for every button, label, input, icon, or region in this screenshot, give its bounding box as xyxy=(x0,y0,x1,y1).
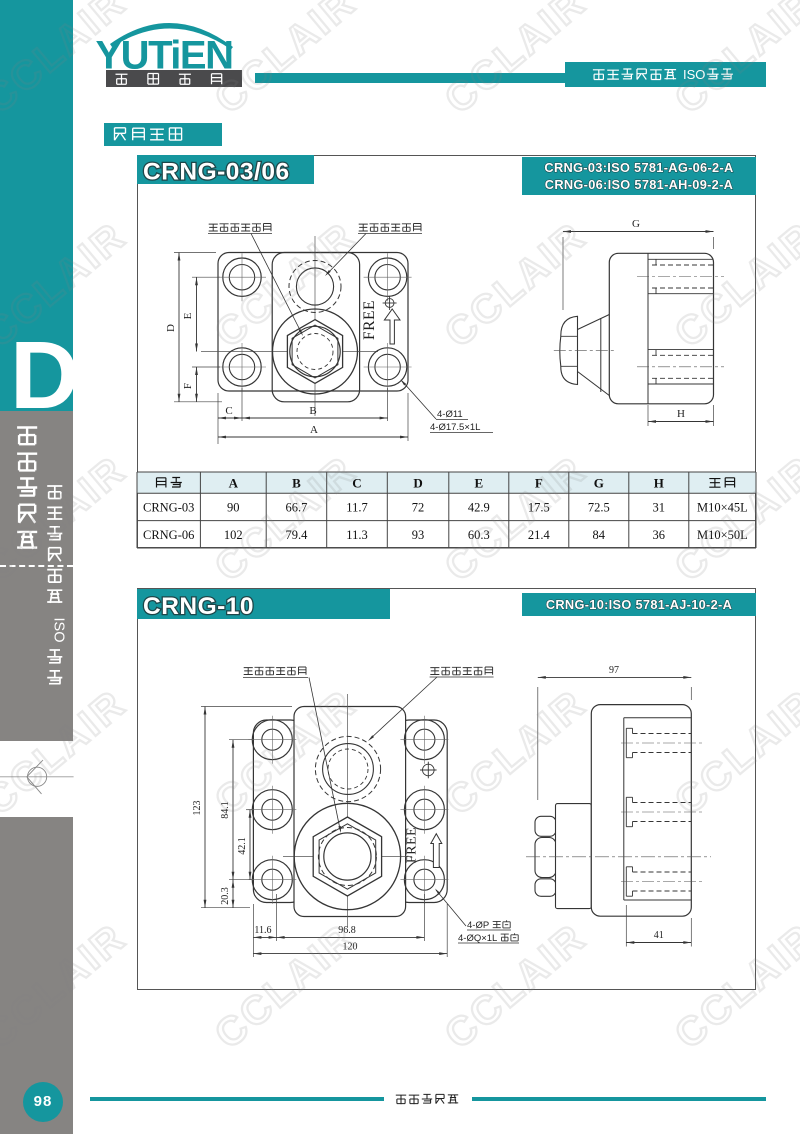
svg-text:CCLAIR: CCLAIR xyxy=(0,214,135,356)
svg-text:CCLAIR: CCLAIR xyxy=(207,447,365,589)
svg-text:CCLAIR: CCLAIR xyxy=(0,681,135,823)
svg-text:CCLAIR: CCLAIR xyxy=(667,681,800,823)
svg-text:CCLAIR: CCLAIR xyxy=(437,214,595,356)
svg-text:CCLAIR: CCLAIR xyxy=(0,0,135,122)
svg-text:CCLAIR: CCLAIR xyxy=(667,915,800,1057)
svg-text:CCLAIR: CCLAIR xyxy=(437,915,595,1057)
svg-text:CCLAIR: CCLAIR xyxy=(437,447,595,589)
svg-text:CCLAIR: CCLAIR xyxy=(207,681,365,823)
svg-text:CCLAIR: CCLAIR xyxy=(437,681,595,823)
svg-text:CCLAIR: CCLAIR xyxy=(437,0,595,122)
svg-text:CCLAIR: CCLAIR xyxy=(207,915,365,1057)
svg-text:CCLAIR: CCLAIR xyxy=(207,214,365,356)
svg-text:CCLAIR: CCLAIR xyxy=(667,0,800,122)
svg-text:CCLAIR: CCLAIR xyxy=(207,0,365,122)
svg-text:CCLAIR: CCLAIR xyxy=(667,447,800,589)
svg-text:CCLAIR: CCLAIR xyxy=(0,915,135,1057)
svg-text:CCLAIR: CCLAIR xyxy=(667,214,800,356)
svg-text:CCLAIR: CCLAIR xyxy=(0,447,135,589)
